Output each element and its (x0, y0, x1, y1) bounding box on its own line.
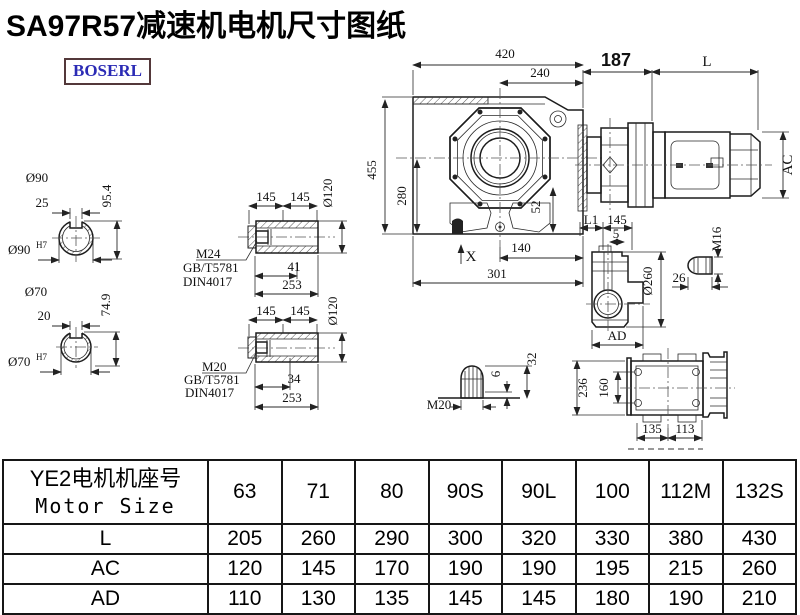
table-cell: 190 (429, 554, 503, 584)
back-113: 113 (675, 421, 694, 436)
motor-size-table: YE2电机机座号 Motor Size 63 71 80 90S 90L 100… (2, 459, 797, 615)
dim-301: 301 (487, 266, 507, 281)
table-cell: 180 (576, 584, 650, 614)
bolt-m20-thread: M20 (427, 397, 452, 412)
dim-52: 52 (528, 201, 543, 214)
bolt-m16-length: 26 (673, 270, 687, 285)
dim-240: 240 (530, 65, 550, 80)
size-col: 63 (208, 460, 282, 524)
table-cell: 430 (723, 524, 797, 554)
side-AD: AD (608, 328, 627, 343)
dim-280: 280 (394, 186, 409, 206)
side-145: 145 (607, 212, 627, 227)
sleeve24-bolt: M24 (196, 246, 221, 261)
side-5: 5 (613, 226, 620, 241)
table-cell: 130 (282, 584, 356, 614)
mark-x: X (466, 249, 477, 265)
dim-420: 420 (495, 46, 515, 61)
table-cell: 260 (282, 524, 356, 554)
technical-drawing: 420 240 455 280 52 140 301 X (0, 0, 800, 459)
gearbox-output-side-view: L1 145 5 Ø260 AD (580, 212, 666, 349)
size-col: 71 (282, 460, 356, 524)
dim-187: 187 (601, 50, 631, 70)
table-cell: 205 (208, 524, 282, 554)
row-label: AD (3, 584, 208, 614)
shaft-section-90: Ø90 25 95.4 Ø90 H7 (8, 170, 122, 263)
size-col: 132S (723, 460, 797, 524)
keyway-25: 25 (36, 195, 49, 210)
side-dia260: Ø260 (640, 267, 655, 296)
shaft-section-70: Ø70 20 74.9 Ø70 H7 (8, 284, 120, 375)
dia-70-label: Ø70 (25, 284, 47, 299)
bolt-detail-m16: M16 26 (672, 226, 728, 290)
bolt-m16-thread: M16 (709, 226, 724, 251)
back-135: 135 (642, 421, 662, 436)
table-cell: 210 (723, 584, 797, 614)
sleeve20-145a: 145 (256, 303, 276, 318)
header-cn: YE2电机机座号 (4, 465, 207, 493)
table-cell: 145 (502, 584, 576, 614)
gearbox-back-view: 236 160 135 113 (572, 348, 735, 449)
table-cell: 290 (355, 524, 429, 554)
table-cell: 195 (576, 554, 650, 584)
size-col: 100 (576, 460, 650, 524)
sleeve24-145b: 145 (290, 189, 310, 204)
sleeve20-253: 253 (282, 390, 302, 405)
table-row-AD: AD 110 130 135 145 145 180 190 210 (3, 584, 796, 614)
table-cell: 320 (502, 524, 576, 554)
sleeve24-dia: Ø120 (320, 179, 335, 208)
table-cell: 145 (429, 584, 503, 614)
dia-90-label: Ø90 (26, 170, 48, 185)
bore-90-tol: H7 (36, 240, 47, 250)
motor-side-view (575, 118, 772, 212)
size-col: 80 (355, 460, 429, 524)
bolt-m20-dim32: 32 (524, 353, 539, 366)
side-L1: L1 (584, 212, 598, 227)
table-cell: 110 (208, 584, 282, 614)
bore-70: Ø70 (8, 354, 30, 369)
sleeve24-din: DIN4017 (183, 274, 233, 289)
sleeve24-41: 41 (288, 259, 301, 274)
table-cell: 120 (208, 554, 282, 584)
size-col: 90L (502, 460, 576, 524)
table-row-AC: AC 120 145 170 190 190 195 215 260 (3, 554, 796, 584)
back-236: 236 (575, 378, 590, 398)
table-cell: 300 (429, 524, 503, 554)
sleeve-m24: 145 145 Ø120 M24 GB/T5781 DIN4017 41 253 (183, 179, 347, 297)
table-cell: 145 (282, 554, 356, 584)
dim-74-9: 74.9 (98, 294, 113, 317)
dim-140: 140 (511, 240, 531, 255)
size-col: 90S (429, 460, 503, 524)
table-cell: 330 (576, 524, 650, 554)
size-col: 112M (649, 460, 723, 524)
table-cell: 135 (355, 584, 429, 614)
table-cell: 260 (723, 554, 797, 584)
table-header-row: YE2电机机座号 Motor Size 63 71 80 90S 90L 100… (3, 460, 796, 524)
row-label: AC (3, 554, 208, 584)
sleeve24-145a: 145 (256, 189, 276, 204)
table-cell: 190 (649, 584, 723, 614)
sleeve20-dia: Ø120 (325, 297, 340, 326)
sleeve20-34: 34 (288, 371, 302, 386)
table-cell: 215 (649, 554, 723, 584)
bolt-detail-m20: M20 6 32 (427, 353, 539, 413)
row-label: L (3, 524, 208, 554)
sleeve-m20: 145 145 Ø120 M20 GB/T5781 DIN4017 34 253 (184, 297, 347, 410)
back-160: 160 (596, 378, 611, 398)
table-row-L: L 205 260 290 300 320 330 380 430 (3, 524, 796, 554)
gearbox-front-view (396, 88, 602, 247)
bolt-m20-dim6: 6 (488, 370, 503, 377)
header-en: Motor Size (4, 493, 207, 519)
dim-L: L (702, 54, 711, 70)
sleeve24-253: 253 (282, 277, 302, 292)
motor-dims: 187 L AC (583, 50, 796, 198)
dim-95-4: 95.4 (99, 184, 114, 207)
table-cell: 190 (502, 554, 576, 584)
table-header-cell: YE2电机机座号 Motor Size (3, 460, 208, 524)
dim-AC: AC (780, 155, 796, 176)
sleeve20-din: DIN4017 (185, 385, 235, 400)
table-cell: 170 (355, 554, 429, 584)
dim-455: 455 (364, 160, 379, 180)
bore-70-tol: H7 (36, 352, 47, 362)
sleeve24-gb: GB/T5781 (183, 260, 239, 275)
bore-90: Ø90 (8, 242, 30, 257)
table-cell: 380 (649, 524, 723, 554)
sleeve20-145b: 145 (290, 303, 310, 318)
keyway-20: 20 (38, 308, 51, 323)
